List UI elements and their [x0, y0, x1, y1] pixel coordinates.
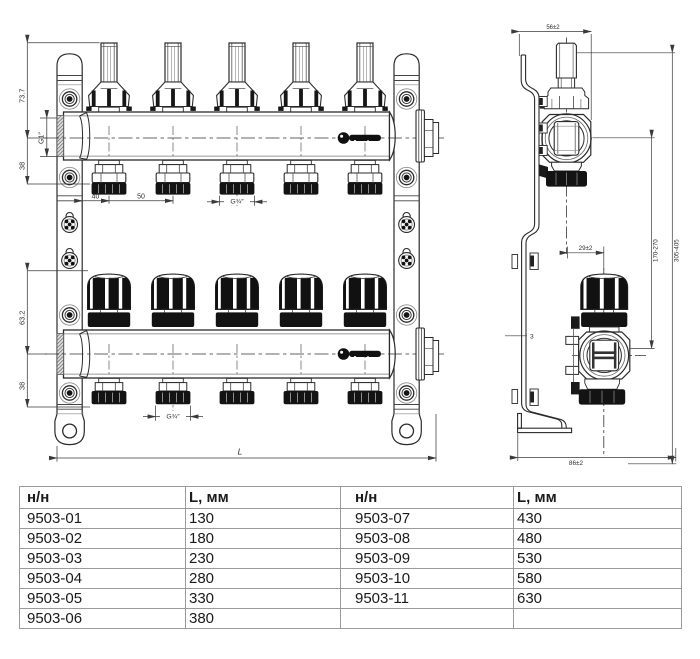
svg-text:38: 38 — [18, 382, 27, 390]
svg-text:63.2: 63.2 — [18, 311, 27, 325]
svg-text:170-270: 170-270 — [653, 239, 660, 262]
svg-text:29±2: 29±2 — [579, 245, 593, 252]
svg-text:G¾″: G¾″ — [166, 413, 180, 420]
svg-text:56±2: 56±2 — [546, 25, 560, 31]
svg-text:L: L — [238, 447, 243, 457]
svg-text:86±2: 86±2 — [569, 460, 584, 467]
svg-text:50: 50 — [137, 193, 145, 200]
svg-text:38: 38 — [18, 162, 27, 170]
svg-text:73.7: 73.7 — [18, 89, 27, 103]
svg-text:G1″: G1″ — [39, 132, 46, 144]
svg-text:305-405: 305-405 — [674, 239, 681, 262]
svg-text:3: 3 — [530, 334, 534, 341]
svg-text:G¾″: G¾″ — [230, 199, 244, 206]
svg-text:40: 40 — [92, 193, 100, 200]
